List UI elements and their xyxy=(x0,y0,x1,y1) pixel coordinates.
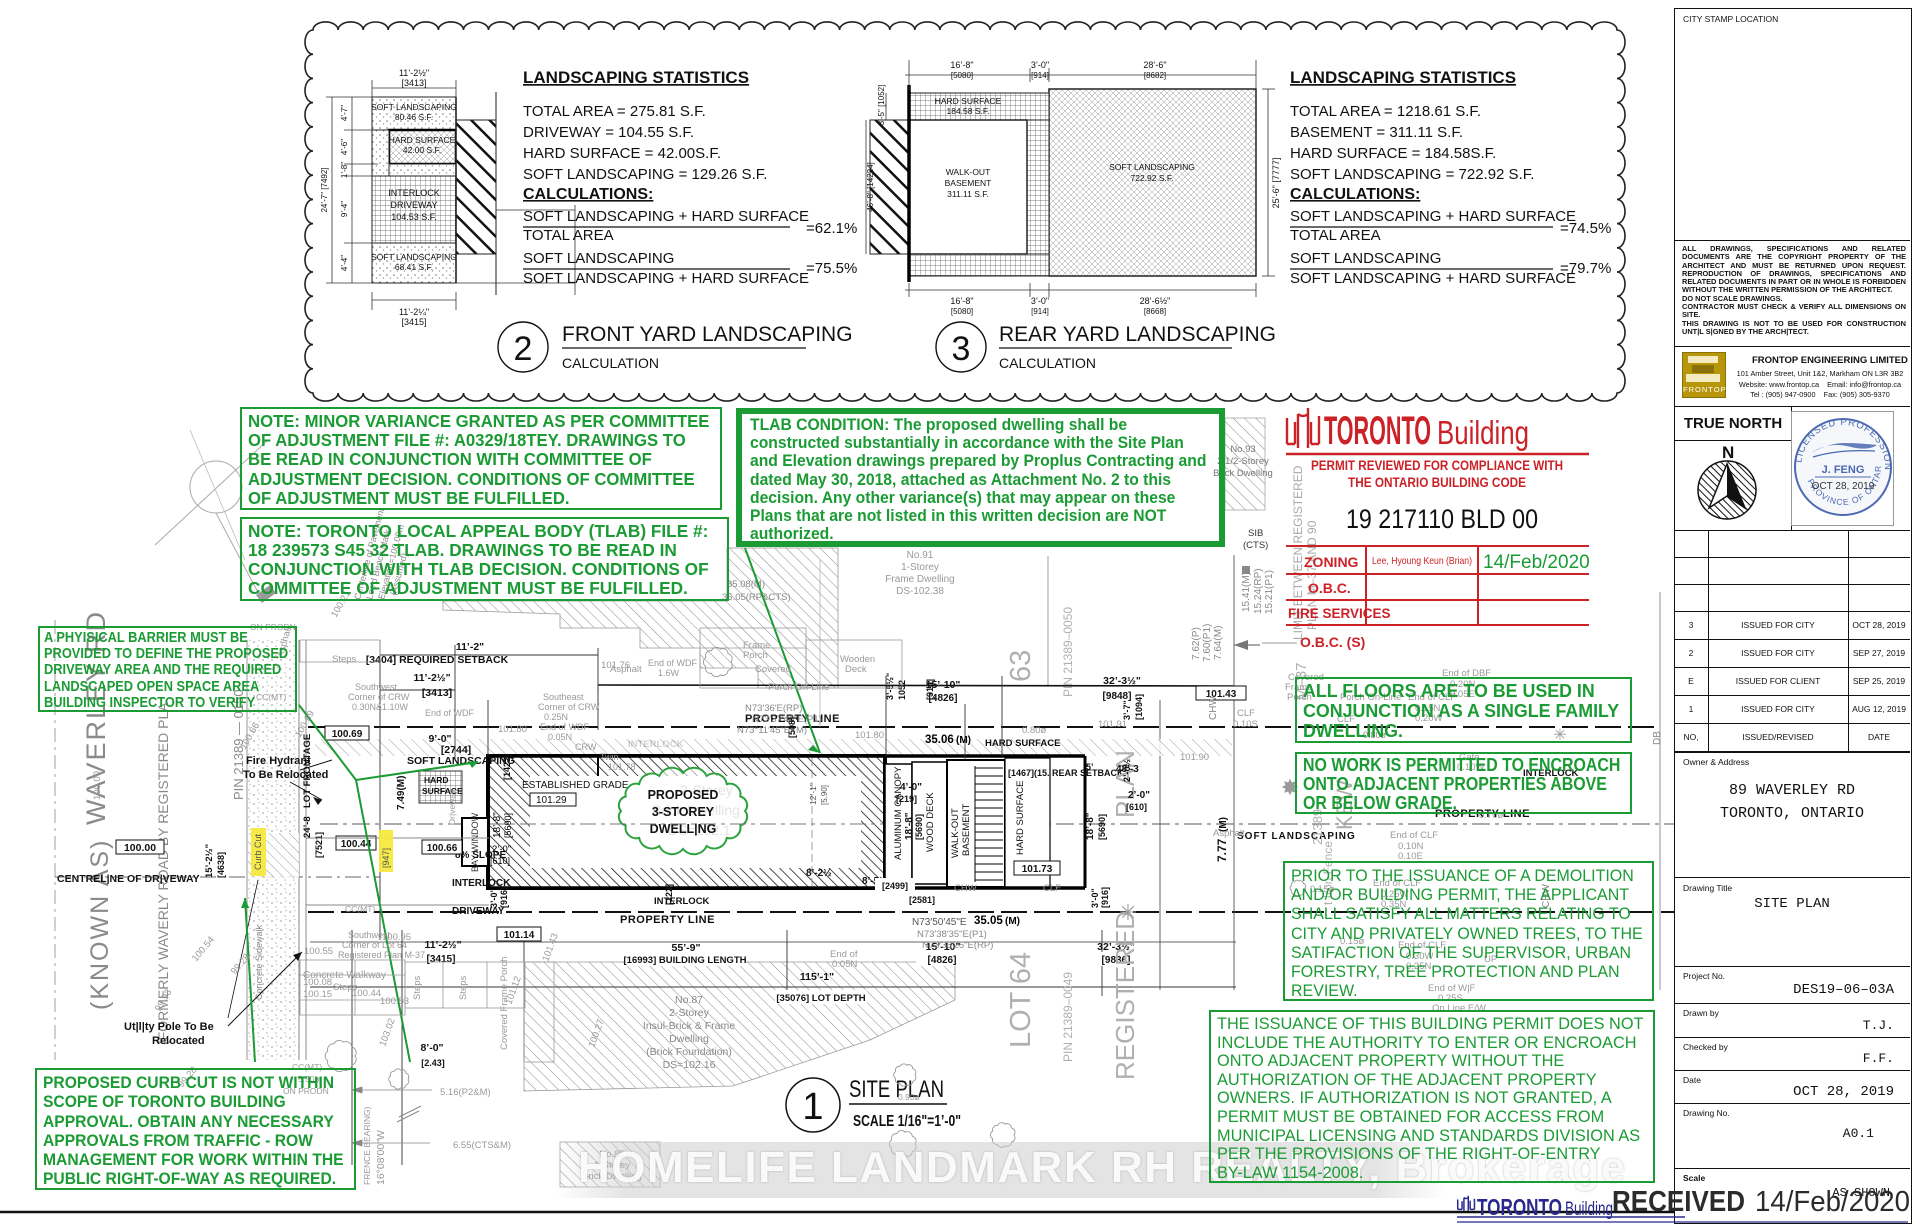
svg-text:11’-2½": 11’-2½" xyxy=(413,672,450,684)
svg-text:[3404] REQUIRED SETBACK: [3404] REQUIRED SETBACK xyxy=(366,654,509,666)
svg-text:Corner of CRW: Corner of CRW xyxy=(538,702,600,712)
svg-text:[3415]: [3415] xyxy=(401,317,426,327)
svg-text:HARD SURFACE: HARD SURFACE xyxy=(1015,781,1026,855)
svg-text:HARD SURFACE: HARD SURFACE xyxy=(935,96,1002,106)
svg-text:ALUMINUM CANOPY: ALUMINUM CANOPY xyxy=(893,766,904,860)
svg-text:Registered Plan M-37: Registered Plan M-37 xyxy=(338,950,425,960)
svg-text:SCALE 1/16"=1’-0": SCALE 1/16"=1’-0" xyxy=(853,1113,961,1130)
svg-text:(Brick Foundation): (Brick Foundation) xyxy=(646,1046,732,1058)
svg-text:3’-0": 3’-0" xyxy=(489,888,499,908)
svg-text:[8682]: [8682] xyxy=(1144,71,1166,80)
svg-text:BASEMENT: BASEMENT xyxy=(961,804,972,856)
svg-text:CALCULATIONS:: CALCULATIONS: xyxy=(1290,186,1420,203)
svg-text:[4826]: [4826] xyxy=(928,955,957,966)
svg-text:[2744]: [2744] xyxy=(441,744,471,756)
svg-text:Covered: Covered xyxy=(755,664,791,675)
svg-text:722.92 S.F.: 722.92 S.F. xyxy=(1130,173,1173,183)
svg-text:(M): (M) xyxy=(1005,916,1020,927)
svg-text:21389: 21389 xyxy=(1310,809,1325,845)
svg-text:104.53 S.F.: 104.53 S.F. xyxy=(391,212,437,222)
svg-text:[508]: [508] xyxy=(787,717,797,738)
svg-text:11’-2¼": 11’-2¼" xyxy=(399,307,429,317)
svg-text:0.10S: 0.10S xyxy=(1233,719,1258,730)
svg-text:CENTREL|NE OF DR|VEWAY: CENTREL|NE OF DR|VEWAY xyxy=(57,873,200,885)
svg-text:4’-4": 4’-4" xyxy=(340,255,349,271)
svg-text:CHW: CHW xyxy=(954,883,977,894)
svg-text:CALCULATION: CALCULATION xyxy=(999,355,1096,371)
svg-text:BASEMENT = 311.11 S.F.: BASEMENT = 311.11 S.F. xyxy=(1290,124,1463,141)
svg-text:2’-0": 2’-0" xyxy=(1128,790,1150,801)
svg-text:REGISTERED: REGISTERED xyxy=(1110,911,1140,1080)
svg-text:INTERLOCK: INTERLOCK xyxy=(654,896,710,907)
svg-text:SOFT LANDSCAPING: SOFT LANDSCAPING xyxy=(1109,162,1195,172)
svg-text:BAY WINDOW: BAY WINDOW xyxy=(470,812,480,872)
svg-text:CLF: CLF xyxy=(1237,708,1255,719)
svg-text:=79.7%: =79.7% xyxy=(1560,260,1611,277)
svg-text:End of WDF: End of WDF xyxy=(648,658,698,668)
svg-text:WOOD DECK: WOOD DECK xyxy=(925,792,936,852)
svg-text:Asphalt: Asphalt xyxy=(610,664,642,675)
svg-text:14/Feb/2020: 14/Feb/2020 xyxy=(1483,552,1590,573)
svg-text:[5690]: [5690] xyxy=(914,814,924,840)
svg-text:35.05: 35.05 xyxy=(974,915,1003,927)
svg-text:WALK-OUT: WALK-OUT xyxy=(950,808,961,858)
svg-text:[5690]: [5690] xyxy=(1097,814,1107,840)
svg-text:11’-2½": 11’-2½" xyxy=(399,68,429,78)
svg-text:101.73: 101.73 xyxy=(1022,864,1053,875)
svg-text:103.02: 103.02 xyxy=(377,1017,397,1048)
svg-text:1’-8": 1’-8" xyxy=(340,162,349,178)
svg-text:14/Feb/2020: 14/Feb/2020 xyxy=(1755,1186,1910,1218)
svg-text:Dwelling: Dwelling xyxy=(669,1033,709,1045)
svg-text:Asphalt: Asphalt xyxy=(1213,828,1245,839)
svg-text:LANDSCAPING STATISTICS: LANDSCAPING STATISTICS xyxy=(1290,68,1516,87)
svg-text:Twin: Twin xyxy=(600,752,619,762)
svg-text:184.58 S.F.: 184.58 S.F. xyxy=(946,106,989,116)
svg-text:[914]: [914] xyxy=(1031,307,1049,316)
svg-text:16’-8": 16’-8" xyxy=(950,296,973,306)
svg-text:HARD SURFACE: HARD SURFACE xyxy=(389,135,456,145)
svg-text:4’-0": 4’-0" xyxy=(900,782,922,793)
svg-text:80.46 S.F.: 80.46 S.F. xyxy=(395,112,433,122)
svg-text:Corner of Lot 64: Corner of Lot 64 xyxy=(342,940,407,950)
svg-text:[3413]: [3413] xyxy=(401,78,426,88)
svg-text:100.66: 100.66 xyxy=(427,843,458,854)
svg-text:1-Storey: 1-Storey xyxy=(901,562,939,573)
svg-text:[914]: [914] xyxy=(925,679,935,700)
svg-text:SOFT LANDSCAPING: SOFT LANDSCAPING xyxy=(1237,831,1356,842)
svg-text:18’-8": 18’-8" xyxy=(492,812,503,838)
svg-text:Insul-Brick & Frame: Insul-Brick & Frame xyxy=(643,1020,735,1032)
svg-text:SOFT LANDSCAPING: SOFT LANDSCAPING xyxy=(523,250,674,267)
svg-text:LANDSCAPING STATISTICS: LANDSCAPING STATISTICS xyxy=(523,68,749,87)
svg-text:DRIVEWAY = 104.55 S.F.: DRIVEWAY = 104.55 S.F. xyxy=(523,124,694,141)
svg-text:SOFT LANDSCAPING: SOFT LANDSCAPING xyxy=(1290,250,1441,267)
svg-text:TOTAL AREA: TOTAL AREA xyxy=(523,227,614,244)
svg-text:J. FENG: J. FENG xyxy=(1822,464,1865,476)
svg-text:[7521]: [7521] xyxy=(314,832,324,858)
svg-text:101.43: 101.43 xyxy=(540,932,560,963)
svg-text:SOFT LANDSCAPING = 129.26 S.F: SOFT LANDSCAPING = 129.26 S.F. xyxy=(523,166,767,183)
svg-text:3’-5" [1052]: 3’-5" [1052] xyxy=(877,85,886,126)
svg-text:DRIVEWAY: DRIVEWAY xyxy=(390,200,437,210)
svg-text:11’-2½": 11’-2½" xyxy=(424,939,461,951)
svg-text:LOT 64: LOT 64 xyxy=(1005,952,1037,1048)
svg-text:N73′36′E(RP): N73′36′E(RP) xyxy=(745,703,802,714)
svg-text:100.08: 100.08 xyxy=(303,977,332,988)
svg-text:7.49(M): 7.49(M) xyxy=(396,776,407,810)
svg-text:18’-8": 18’-8" xyxy=(1085,812,1096,840)
svg-text:N73′36′25"E(RP): N73′36′25"E(RP) xyxy=(922,940,993,951)
svg-text:SOFT LANDSCAPING: SOFT LANDSCAPING xyxy=(371,252,457,262)
svg-text:Steps: Steps xyxy=(458,975,469,1000)
svg-text:CHW: CHW xyxy=(1208,696,1219,720)
svg-text:0.30N&1.10W: 0.30N&1.10W xyxy=(352,702,409,712)
svg-text:SOFT LANDSCAPING + HARD SURFAC: SOFT LANDSCAPING + HARD SURFACE xyxy=(523,270,809,287)
svg-text:[3413]: [3413] xyxy=(422,687,452,699)
svg-text:100.15: 100.15 xyxy=(303,989,332,1000)
svg-text:Ut|l|ty Pole To Be: Ut|l|ty Pole To Be xyxy=(124,1021,214,1033)
svg-text:[610]: [610] xyxy=(490,856,510,866)
svg-text:25’-6" [7777]: 25’-6" [7777] xyxy=(1271,158,1281,209)
svg-text:Southwest: Southwest xyxy=(355,682,398,692)
svg-text:CALCULATION: CALCULATION xyxy=(562,355,659,371)
svg-text:15.21(P1): 15.21(P1) xyxy=(1264,570,1275,614)
svg-text:[5080]: [5080] xyxy=(951,307,973,316)
svg-text:100.55: 100.55 xyxy=(304,946,333,957)
svg-text:ESTABLISHED GRADE: ESTABLISHED GRADE xyxy=(522,780,629,791)
svg-text:3’-0": 3’-0" xyxy=(1090,888,1100,908)
svg-text:RECEIVED: RECEIVED xyxy=(1612,1186,1745,1218)
svg-text:Steps: Steps xyxy=(412,975,423,1000)
svg-text:7.64(M): 7.64(M) xyxy=(1213,626,1224,660)
svg-text:HARD SURFACE = 184.58S.F.: HARD SURFACE = 184.58S.F. xyxy=(1290,145,1496,162)
svg-text:2’-0": 2’-0" xyxy=(492,844,511,855)
svg-text:100.00: 100.00 xyxy=(124,842,156,854)
svg-text:Steps: Steps xyxy=(332,654,357,665)
svg-text:[3415]: [3415] xyxy=(427,954,456,965)
svg-text:15’-2½": 15’-2½" xyxy=(204,844,215,878)
svg-text:4’-6": 4’-6" xyxy=(340,139,349,155)
svg-text:35.06: 35.06 xyxy=(925,734,954,746)
svg-text:SIB: SIB xyxy=(1248,528,1263,539)
svg-text:[2.43]: [2.43] xyxy=(421,1058,445,1068)
svg-text:PERMIT REVIEWED FOR COMPLIANCE: PERMIT REVIEWED FOR COMPLIANCE WITH xyxy=(1311,458,1563,473)
svg-text:7.60(P1): 7.60(P1) xyxy=(1202,624,1213,662)
svg-text:7.62(P): 7.62(P) xyxy=(1191,627,1202,660)
svg-text:CC(MT): CC(MT) xyxy=(345,904,375,914)
svg-text:CLF: CLF xyxy=(1043,883,1061,894)
svg-text:FRONT YARD LANDSCAPING: FRONT YARD LANDSCAPING xyxy=(562,323,853,346)
svg-text:Southeast: Southeast xyxy=(543,692,584,702)
svg-text:6.55(CTS&M): 6.55(CTS&M) xyxy=(453,1140,511,1151)
svg-text:100.69: 100.69 xyxy=(332,729,363,740)
svg-text:HARD SURFACE = 42.00S.F.: HARD SURFACE = 42.00S.F. xyxy=(523,145,721,162)
svg-text:[8668]: [8668] xyxy=(1144,307,1166,316)
svg-text:9’-4": 9’-4" xyxy=(340,201,349,217)
svg-text:2-Storey: 2-Storey xyxy=(669,1007,709,1019)
svg-text:24’-8: 24’-8 xyxy=(302,816,313,838)
svg-text:4’-7": 4’-7" xyxy=(340,105,349,121)
svg-text:3’-7": 3’-7" xyxy=(1122,700,1132,720)
svg-text:=62.1%: =62.1% xyxy=(806,220,857,237)
svg-text:No.87: No.87 xyxy=(675,994,703,1006)
svg-text:0.90ø: 0.90ø xyxy=(898,1092,920,1102)
svg-text:HARD: HARD xyxy=(424,775,449,785)
svg-text:BASEMENT: BASEMENT xyxy=(945,178,992,188)
svg-text:[916]: [916] xyxy=(1100,887,1110,908)
svg-text:Southwest: Southwest xyxy=(348,930,391,940)
svg-text:8’-0": 8’-0" xyxy=(420,1042,443,1054)
svg-text:[1094]: [1094] xyxy=(1134,694,1144,720)
svg-text:[4638]: [4638] xyxy=(216,852,226,878)
svg-text:Corner of CRW: Corner of CRW xyxy=(348,692,410,702)
svg-text:Porch: Porch xyxy=(743,650,768,661)
svg-text:=74.5%: =74.5% xyxy=(1560,220,1611,237)
svg-text:No.91: No.91 xyxy=(907,550,934,561)
svg-text:16°08′00"W: 16°08′00"W xyxy=(375,1130,387,1185)
svg-text:SOFT LANDSCAPING + HARD SURFAC: SOFT LANDSCAPING + HARD SURFACE xyxy=(523,208,809,225)
svg-text:48’-3: 48’-3 xyxy=(1116,764,1139,775)
svg-text:68.41 S.F.: 68.41 S.F. xyxy=(395,262,433,272)
svg-text:TOTAL AREA: TOTAL AREA xyxy=(1290,227,1381,244)
svg-text:End of WDF: End of WDF xyxy=(425,708,475,718)
svg-text:OCT 28, 2019: OCT 28, 2019 xyxy=(1812,481,1875,492)
svg-text:SOFT LANDSCAPING + HARD SURFAC: SOFT LANDSCAPING + HARD SURFACE xyxy=(1290,208,1576,225)
svg-text:(CTS): (CTS) xyxy=(1243,540,1268,551)
svg-text:[1422]: [1422] xyxy=(502,754,512,780)
svg-text:311.11 S.F.: 311.11 S.F. xyxy=(947,189,989,199)
svg-text:(M): (M) xyxy=(956,735,971,746)
svg-text:Porch On-Line: Porch On-Line xyxy=(768,682,829,693)
svg-text:PROPERTY LINE: PROPERTY LINE xyxy=(620,914,715,926)
svg-text:SOFT LANDSCAPING = 722.92 S.F: SOFT LANDSCAPING = 722.92 S.F. xyxy=(1290,166,1534,183)
svg-text:[35076] LOT DEPTH: [35076] LOT DEPTH xyxy=(776,993,865,1004)
svg-text:32’-3½": 32’-3½" xyxy=(1103,675,1141,687)
svg-text:Relocated: Relocated xyxy=(152,1035,205,1047)
svg-text:Building: Building xyxy=(1437,414,1529,451)
svg-text:63: 63 xyxy=(1005,650,1037,682)
svg-text:101.78: 101.78 xyxy=(608,762,636,772)
svg-text:INTERLOCK: INTERLOCK xyxy=(388,188,440,198)
svg-text:101.29: 101.29 xyxy=(536,795,567,806)
svg-text:[5690]: [5690] xyxy=(503,813,513,838)
svg-text:✳: ✳ xyxy=(1119,900,1137,925)
svg-text:DS-102.38: DS-102.38 xyxy=(896,586,944,597)
svg-text:HARD SURFACE: HARD SURFACE xyxy=(985,738,1060,749)
svg-text:SOFT LANDSCAPING + HARD SURFAC: SOFT LANDSCAPING + HARD SURFACE xyxy=(1290,270,1576,287)
svg-text:101.80: 101.80 xyxy=(855,730,884,741)
svg-text:To Be Relocated: To Be Relocated xyxy=(243,769,328,781)
svg-text:Concrete Sidewalk: Concrete Sidewalk xyxy=(254,924,264,1000)
svg-text:3: 3 xyxy=(952,330,971,368)
svg-text:[2581]: [2581] xyxy=(909,895,935,905)
svg-text:0.05N: 0.05N xyxy=(548,732,572,742)
svg-text:[5080]: [5080] xyxy=(951,71,973,80)
svg-text:End of WDF: End of WDF xyxy=(540,722,590,732)
svg-text:THE ONTARIO BUILDING CODE: THE ONTARIO BUILDING CODE xyxy=(1348,475,1526,490)
svg-text:Dr|veway: Dr|veway xyxy=(447,789,457,825)
svg-text:0.05N: 0.05N xyxy=(832,959,857,970)
svg-text:3’-5½": 3’-5½" xyxy=(885,673,895,700)
svg-text:7.77: 7.77 xyxy=(1215,838,1229,862)
svg-text:CALCULATIONS:: CALCULATIONS: xyxy=(523,186,653,203)
svg-text:[1467](15. REAR SETBACK: [1467](15. REAR SETBACK xyxy=(1008,768,1124,778)
svg-text:CRW: CRW xyxy=(575,742,597,752)
svg-text:O.B.C.: O.B.C. xyxy=(1308,580,1351,596)
svg-text:8’-2½: 8’-2½ xyxy=(806,868,832,879)
svg-text:101.90: 101.90 xyxy=(1180,752,1209,763)
svg-text:[5.90]: [5.90] xyxy=(820,785,829,805)
svg-text:FRENCE BEARING): FRENCE BEARING) xyxy=(362,1106,372,1185)
svg-text:TOTAL AREA = 275.81 S.F.: TOTAL AREA = 275.81 S.F. xyxy=(523,103,706,120)
svg-text:0.25N: 0.25N xyxy=(544,712,568,722)
svg-text:[219]: [219] xyxy=(896,794,917,804)
svg-text:SOFT LANDSCAPING: SOFT LANDSCAPING xyxy=(371,102,457,112)
svg-text:5.16(P2&M): 5.16(P2&M) xyxy=(440,1087,491,1098)
svg-text:FIRE SERVICES: FIRE SERVICES xyxy=(1288,606,1391,621)
svg-text:42.00 S.F.: 42.00 S.F. xyxy=(403,145,441,155)
svg-text:12’-1": 12’-1" xyxy=(808,783,818,805)
svg-text:TOTAL AREA = 1218.61 S.F.: TOTAL AREA = 1218.61 S.F. xyxy=(1290,103,1481,120)
svg-text:Curb Cut: Curb Cut xyxy=(253,833,263,870)
svg-text:35.05(RP&CTS): 35.05(RP&CTS) xyxy=(722,592,791,603)
svg-text:11’-2": 11’-2" xyxy=(456,641,484,653)
svg-text:PROPOSED: PROPOSED xyxy=(648,788,719,802)
svg-text:0.80ø: 0.80ø xyxy=(1022,725,1046,736)
svg-text:DB: DB xyxy=(1652,731,1663,745)
svg-text:3-STOREY: 3-STOREY xyxy=(652,805,715,819)
svg-text:End of CLF: End of CLF xyxy=(1390,830,1438,841)
svg-text:Frame Dwelling: Frame Dwelling xyxy=(885,574,954,585)
svg-text:28’-6": 28’-6" xyxy=(1143,60,1166,70)
svg-text:15.24(RP): 15.24(RP) xyxy=(1253,568,1264,614)
svg-text:DS=102.16: DS=102.16 xyxy=(663,1059,716,1071)
svg-text:No.93: No.93 xyxy=(1230,444,1255,455)
svg-text:Fire Hydrant: Fire Hydrant xyxy=(246,755,311,767)
svg-text:TORONTO: TORONTO xyxy=(1324,409,1431,453)
svg-text:28’-6½": 28’-6½" xyxy=(1140,296,1171,306)
svg-text:O.B.C. (S): O.B.C. (S) xyxy=(1300,634,1365,650)
svg-text:Deck: Deck xyxy=(845,664,867,675)
svg-text:[122]: [122] xyxy=(664,884,674,905)
svg-text:15.41(M): 15.41(M) xyxy=(1241,572,1252,612)
svg-text:100.54: 100.54 xyxy=(190,935,217,964)
svg-text:[610]: [610] xyxy=(1126,802,1147,812)
svg-text:3’-0": 3’-0" xyxy=(1031,60,1049,70)
svg-text:N73′38′35"E(P1): N73′38′35"E(P1) xyxy=(917,929,987,940)
svg-text:[2499]: [2499] xyxy=(882,881,908,891)
svg-text:Lee, Hyoung Keun (Brian): Lee, Hyoung Keun (Brian) xyxy=(1372,555,1472,567)
svg-text:2: 2 xyxy=(514,330,533,368)
svg-text:115’-1": 115’-1" xyxy=(800,971,834,983)
svg-text:101.14: 101.14 xyxy=(504,930,535,941)
svg-text:=75.5%: =75.5% xyxy=(806,260,857,277)
svg-text:SITE PLAN: SITE PLAN xyxy=(849,1076,944,1103)
svg-text:46’-8" [14224]: 46’-8" [14224] xyxy=(866,162,875,212)
svg-text:REAR YARD LANDSCAPING: REAR YARD LANDSCAPING xyxy=(999,323,1276,346)
svg-text:3’-0": 3’-0" xyxy=(1031,296,1049,306)
svg-text:[947]: [947] xyxy=(381,848,391,868)
svg-text:101.80: 101.80 xyxy=(498,724,527,735)
svg-text:TORONTO: TORONTO xyxy=(1477,1194,1562,1220)
svg-text:[916]: [916] xyxy=(499,887,509,908)
svg-text:PIN 21389–0050: PIN 21389–0050 xyxy=(1061,607,1075,697)
svg-text:19 217110 BLD 00: 19 217110 BLD 00 xyxy=(1346,504,1538,534)
svg-text:(KNOWN AS): (KNOWN AS) xyxy=(86,839,114,1010)
svg-text:24’-7" [7492]: 24’-7" [7492] xyxy=(320,167,329,212)
svg-text:1.6W: 1.6W xyxy=(658,668,680,678)
svg-text:1: 1 xyxy=(802,1086,823,1128)
svg-text:N73′50′45"E: N73′50′45"E xyxy=(912,917,967,928)
svg-text:16’-8": 16’-8" xyxy=(950,60,973,70)
svg-text:100.44: 100.44 xyxy=(352,988,381,999)
svg-text:ZONING: ZONING xyxy=(1304,554,1359,570)
svg-text:WALK-OUT: WALK-OUT xyxy=(946,167,991,177)
svg-text:100.00: 100.00 xyxy=(92,771,103,800)
svg-text:[914]: [914] xyxy=(1031,71,1049,80)
svg-text:5’: 5’ xyxy=(1086,762,1094,772)
svg-text:[16993] BUILDING LENGTH: [16993] BUILDING LENGTH xyxy=(624,955,747,966)
svg-text:PIN 21389–0049: PIN 21389–0049 xyxy=(1061,972,1075,1062)
